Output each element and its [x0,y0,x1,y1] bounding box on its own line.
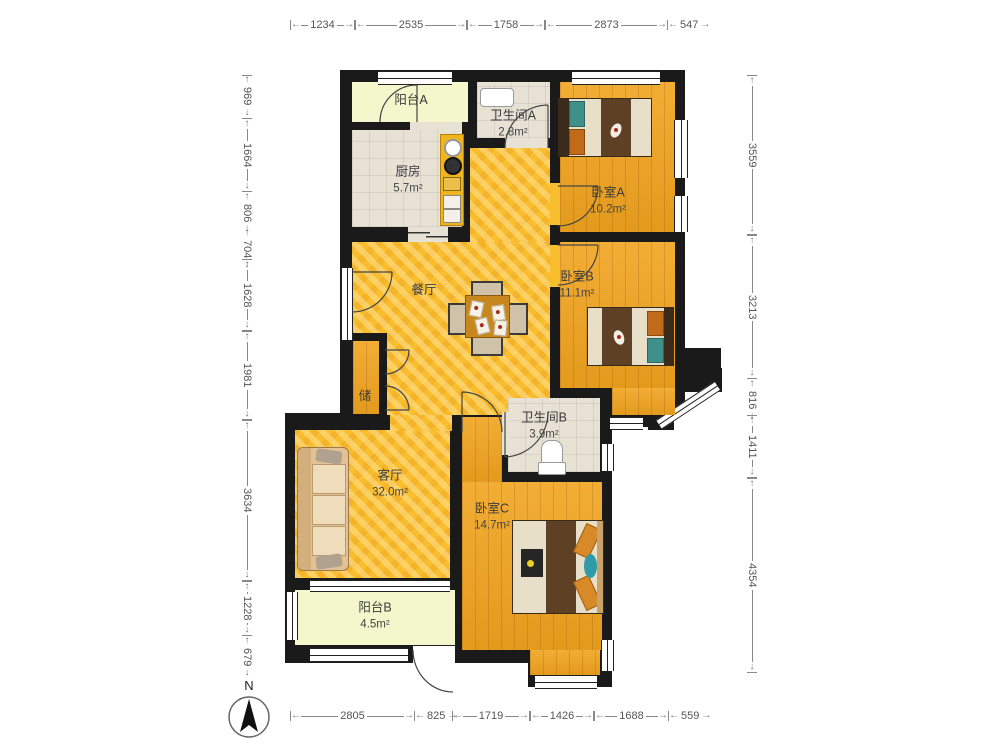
dimension-segment: ←1426→ [530,708,594,724]
dimension-segment: ←2805→ [290,708,415,724]
dimension-segment: ←1688→ [594,708,669,724]
dimension-segment: ↑3213↓ [744,235,760,379]
dimension-segment: ←1758→ [467,17,545,33]
dimension-segment: ↑4354↓ [744,478,760,673]
compass-icon [229,697,269,737]
dimension-segment: ↑1981↓ [239,331,255,420]
dimension-segment: ↑3634↓ [239,420,255,581]
dimension-segment: ←547→ [668,17,693,33]
dimension-segment: ←825→ [415,708,452,724]
dimension-segment: ←2535→ [355,17,467,33]
floor-plan: 阳台A 厨房5.7m² 卫生间A2.8m² 卧室A10.2m² 卧室B11.1m… [0,0,1000,750]
dimension-segment: ←2873→ [545,17,668,33]
dimension-segment: ↑3559↓ [744,75,760,235]
compass-north-label: N [242,678,256,693]
dimension-segment: ↑969↓ [239,75,255,118]
dimension-segment: ↑679↓ [239,636,255,666]
dimension-segment: ←1234→ [290,17,355,33]
dimension-segment: ↑816↓ [744,379,760,415]
dimension-segment: ↑1628↓ [239,259,255,331]
dimension-segment: ←559→ [669,708,694,724]
dimension-segment: ↑704↓ [239,228,255,259]
dimension-segment: ↑1228↓ [239,581,255,636]
dimension-segment: ↑1411↓ [744,415,760,478]
dimension-segment: ↑1664↓ [239,118,255,192]
dimension-segment: ↑806↓ [239,192,255,228]
dimension-segment: ←1719→ [452,708,530,724]
door-arcs-layer [0,0,1000,750]
